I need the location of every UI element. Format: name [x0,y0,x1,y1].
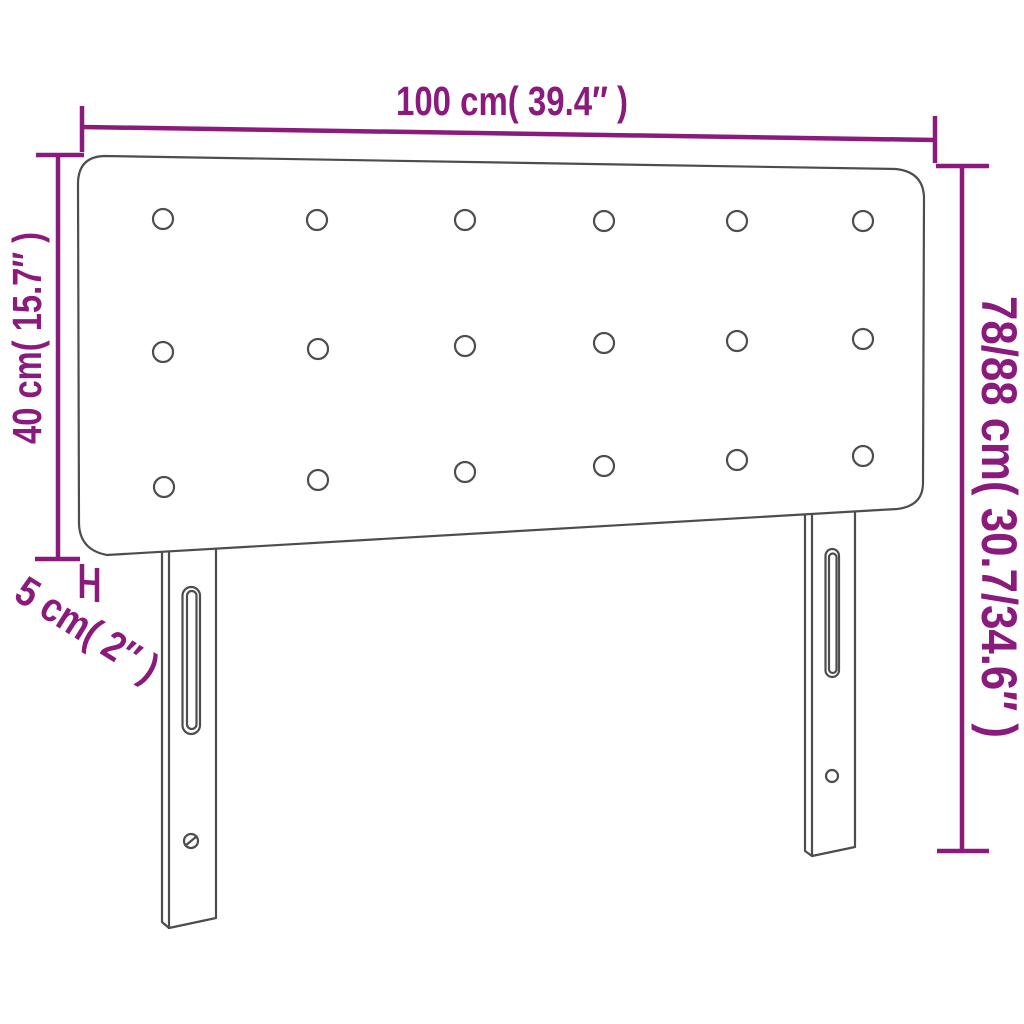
width-dimension-label: 100 cm( 39.4″ ) [396,78,628,124]
right-leg [805,500,855,856]
diagram-canvas: 100 cm( 39.4″ ) 40 cm( 15.7″ ) 78/88 cm(… [0,0,1024,1024]
headboard-panel [78,156,924,555]
width-dimension: 100 cm( 39.4″ ) [82,78,935,163]
upholstery-button [455,210,475,230]
upholstery-button [727,450,747,470]
left-leg [162,540,216,928]
total-height-dimension-label: 78/88 cm( 30.7/34.6″ ) [971,296,1024,738]
upholstery-button [154,477,174,497]
upholstery-button [307,210,327,230]
depth-dimension: 5 cm( 2″ ) [7,564,167,691]
upholstery-button [153,342,173,362]
upholstery-button [727,331,747,351]
upholstery-button [594,211,614,231]
upholstery-button [727,211,747,231]
headboard-dimension-diagram: 100 cm( 39.4″ ) 40 cm( 15.7″ ) 78/88 cm(… [0,0,1024,1024]
upholstery-button [455,462,475,482]
total-height-dimension: 78/88 cm( 30.7/34.6″ ) [936,166,1024,851]
upholstery-button [853,329,873,349]
panel-height-dimension: 40 cm( 15.7″ ) [4,155,84,559]
width-dimension-line [82,127,935,140]
depth-dimension-label: 5 cm( 2″ ) [7,567,167,691]
upholstery-button [455,336,475,356]
upholstery-button [853,211,873,231]
depth-dimension-line [82,582,97,583]
panel-height-dimension-label: 40 cm( 15.7″ ) [4,232,50,444]
upholstery-button [853,446,873,466]
upholstery-button [153,209,173,229]
upholstery-button [308,470,328,490]
upholstery-button [308,339,328,359]
upholstery-button [594,456,614,476]
upholstery-button [594,333,614,353]
